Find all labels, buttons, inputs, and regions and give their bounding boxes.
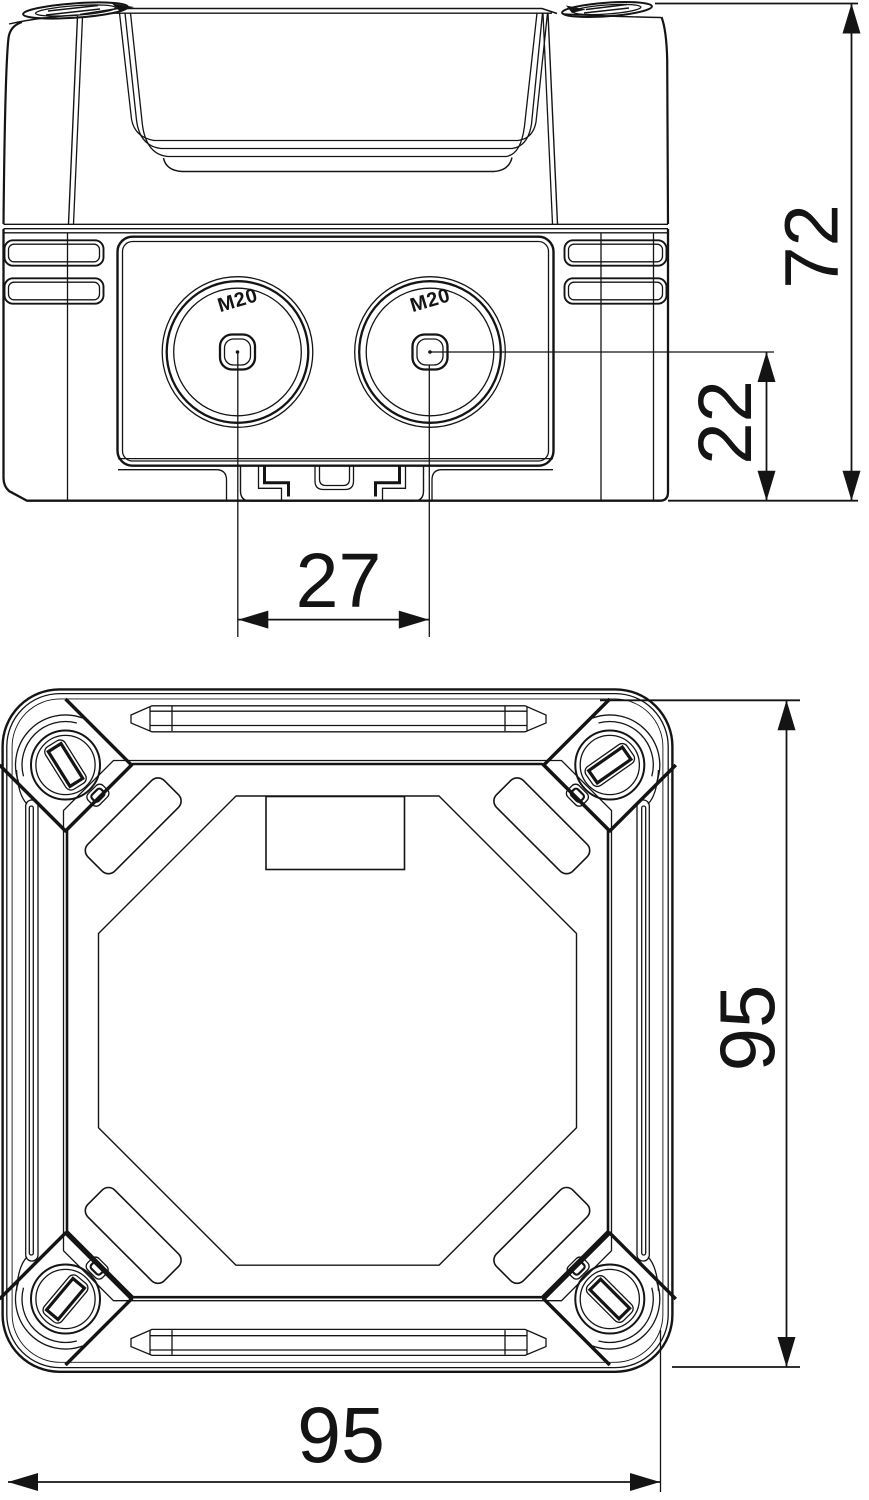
svg-text:95: 95 bbox=[297, 1390, 385, 1479]
svg-text:95: 95 bbox=[703, 985, 791, 1072]
svg-text:M20: M20 bbox=[215, 284, 260, 317]
svg-text:72: 72 bbox=[770, 204, 855, 289]
svg-text:M20: M20 bbox=[408, 284, 453, 317]
svg-text:22: 22 bbox=[683, 380, 768, 465]
svg-text:27: 27 bbox=[296, 538, 382, 624]
